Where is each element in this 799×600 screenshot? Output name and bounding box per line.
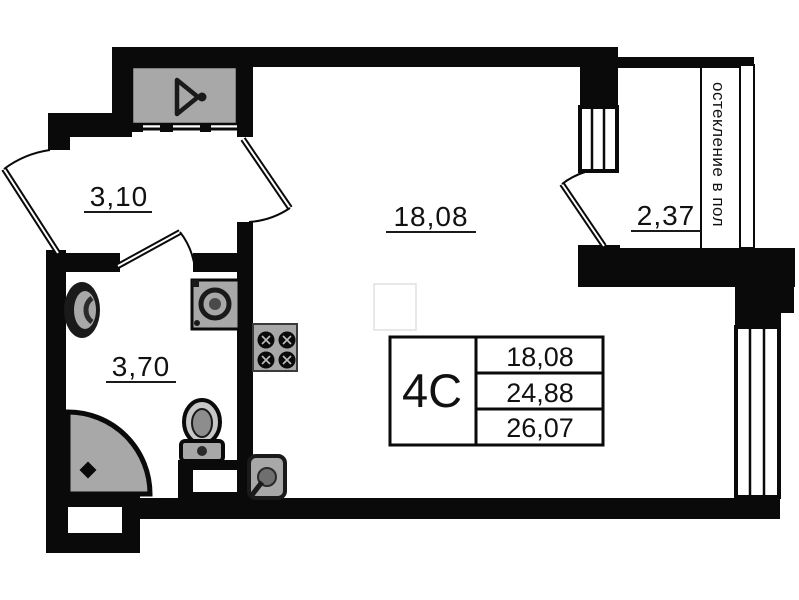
balcony-area-label: 2,37: [637, 200, 696, 231]
balcony-glazing-band: [740, 65, 754, 248]
wall-entry-jamb: [48, 113, 70, 150]
bathroom-fixtures: [64, 280, 239, 494]
wall-right-step: [735, 287, 794, 313]
wall-wardrobe-left: [112, 47, 132, 137]
floor-plan-drawing: 3,10 18,08 2,37 3,70 4С 18,08 24,88 26,0…: [0, 0, 799, 600]
stove-icon: [253, 324, 297, 371]
bathroom-door-icon: [118, 232, 195, 269]
wall-balcony-top: [618, 57, 754, 68]
wall-bath-top-left: [66, 253, 120, 272]
bathroom-area-label: 3,70: [112, 351, 171, 382]
floor-plan-page: 3,10 18,08 2,37 3,70 4С 18,08 24,88 26,0…: [0, 0, 799, 600]
stamp-total-area: 24,88: [506, 378, 574, 408]
wardrobe-box: [132, 67, 237, 124]
unit-type-label: 4С: [402, 364, 462, 417]
wall-hall-stub: [237, 67, 253, 137]
stamp-total-with-balcony: 26,07: [506, 413, 574, 443]
ghost-furniture-outline: [374, 284, 416, 330]
hallway-area-label: 3,10: [90, 181, 149, 212]
wall-bottom: [140, 498, 780, 519]
niche-duct: [193, 470, 237, 492]
balcony-door-icon: [562, 172, 604, 246]
washing-machine-icon: [192, 280, 239, 329]
sink-icon: [64, 282, 100, 338]
glazing-note: остекление в пол: [709, 82, 728, 227]
wall-top: [112, 47, 618, 67]
shower-icon: [68, 412, 150, 494]
track-tick: [160, 124, 173, 132]
wall-balcony-bottom: [580, 248, 795, 287]
window-right: [736, 327, 779, 497]
entrance-door-icon: [4, 150, 58, 253]
hall-door-icon: [243, 139, 290, 222]
kitchen-sink-icon: [249, 456, 285, 498]
stamp-living-area: 18,08: [506, 342, 574, 372]
living-area-label: 18,08: [393, 201, 468, 232]
wall-balcony-corner: [600, 67, 618, 78]
wall-bath-right: [237, 222, 253, 465]
wardrobe: [112, 67, 237, 132]
track-tick: [200, 124, 211, 132]
track-tick: [130, 124, 143, 132]
window-balcony-wall: [580, 107, 617, 171]
unit-stamp: 4С 18,08 24,88 26,07: [390, 337, 603, 445]
wall-right-upper: [735, 313, 781, 327]
toilet-icon: [181, 400, 223, 461]
niche-bottom-left: [68, 507, 122, 533]
